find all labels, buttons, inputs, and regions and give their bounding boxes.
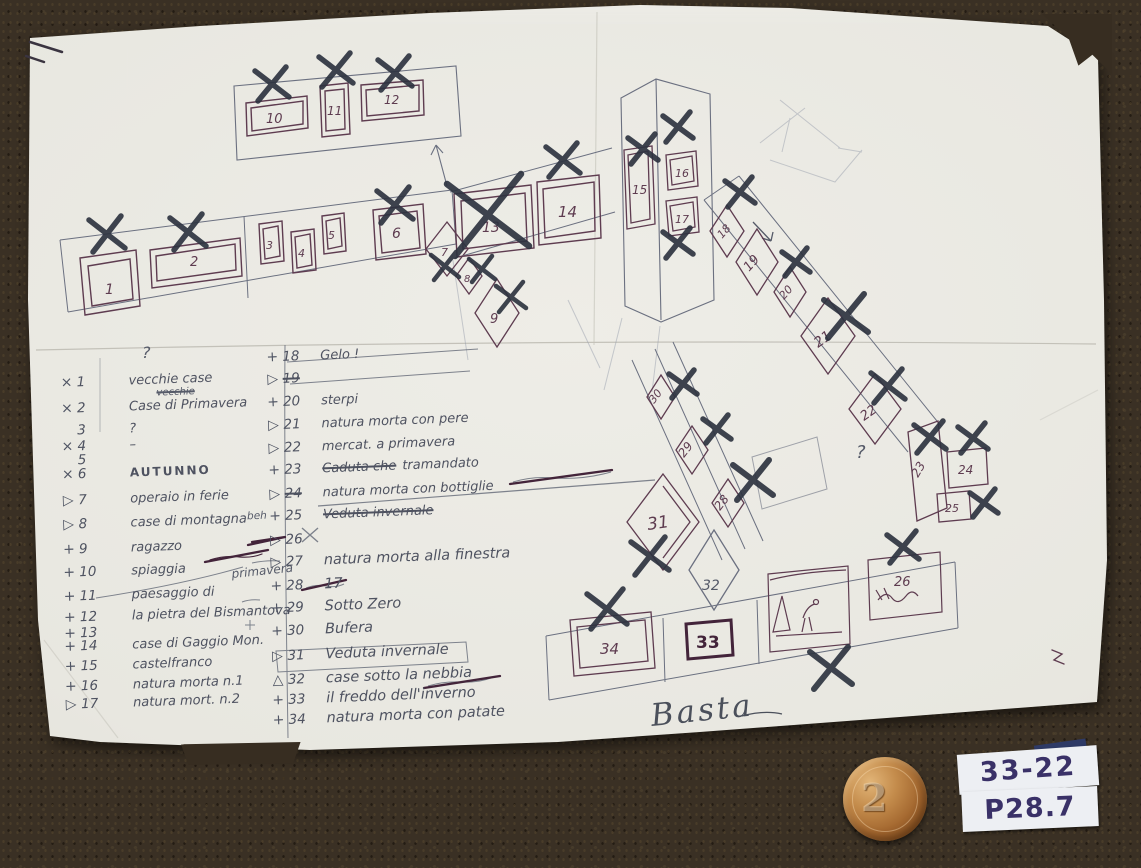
item-number: 29 (286, 600, 317, 615)
item-mark (58, 464, 78, 465)
item-number: 10 (79, 564, 105, 579)
item-number: 24 (284, 486, 315, 501)
frame-20: 20 (774, 267, 806, 317)
frames-bottom: 31 32 33 34 26 (570, 474, 942, 676)
frame-label-28: 28 (711, 492, 732, 513)
x-marks (89, 53, 998, 689)
frame-label-26: 26 (894, 575, 911, 590)
torn-notch (181, 742, 303, 765)
item-mark: ▷ (262, 372, 283, 387)
frame-label-7: 7 (441, 246, 448, 259)
frame-label-1: 1 (105, 282, 114, 298)
item-title: operaio in ferie (130, 489, 229, 506)
item-number: 20 (283, 394, 314, 409)
item-number: 30 (287, 623, 318, 638)
item-number: 14 (80, 638, 106, 653)
item-mark: ▷ (263, 418, 284, 433)
item-mark: + (60, 639, 81, 654)
frame-label-3: 3 (266, 239, 273, 252)
frame-33: 33 (686, 620, 733, 659)
item-title: castelfranco (132, 656, 212, 672)
item-number: 9 (79, 541, 105, 556)
list-item: 3? (57, 421, 136, 438)
sketch-drawing: 10 11 12 1 2 3 4 5 6 (0, 0, 1141, 868)
item-mark: + (268, 713, 289, 728)
wall-right-diagonal (704, 176, 941, 452)
frame-label-34: 34 (600, 640, 619, 658)
item-title: Bufera (325, 621, 374, 638)
frame-31: 31 (627, 474, 699, 570)
item-number: 26 (285, 532, 316, 547)
frame-doodle (768, 566, 850, 652)
list-item: +2817 (266, 577, 343, 595)
item-mark: ▷ (267, 649, 288, 664)
item-mark: ▷ (58, 517, 79, 532)
item-mark: × (57, 439, 78, 454)
item-mark: + (267, 624, 288, 639)
frame-34: 34 (570, 612, 655, 676)
item-mark: + (262, 350, 283, 365)
photo-of-sketch: 10 11 12 1 2 3 4 5 6 (0, 0, 1141, 868)
item-number: 11 (79, 588, 105, 603)
frame-label-5: 5 (328, 229, 335, 242)
item-number: 3 (77, 422, 103, 437)
item-mark: ▷ (266, 555, 287, 570)
frame-label-33: 33 (696, 633, 720, 653)
list-item: ▷26 (265, 531, 324, 548)
frame-15: 15 (624, 146, 655, 229)
frame-17: 17 (666, 197, 699, 236)
item-title: vecchie case (128, 372, 212, 389)
frame-label-12: 12 (384, 93, 399, 107)
frame-label-4: 4 (298, 247, 305, 260)
faint-square (752, 437, 827, 509)
item-mark: + (266, 579, 287, 594)
frame-1: 1 (80, 250, 140, 315)
item-number: 28 (286, 578, 317, 593)
item-mark: + (60, 610, 81, 625)
item-mark: ▷ (61, 697, 82, 712)
item-number: 22 (284, 440, 315, 455)
frame-label-31: 31 (646, 512, 670, 535)
basta-text: Basta (648, 687, 755, 734)
frame-25: 25 (937, 491, 971, 522)
item-number: 21 (283, 417, 314, 432)
annotations: ? ? primavera Basta (142, 343, 866, 734)
frames-left-wall: 1 2 3 4 5 6 (80, 204, 426, 315)
item-note-left: beh (247, 511, 267, 523)
sticker-label-bottom: P28.7 (961, 786, 1099, 832)
frame-label-30: 30 (646, 387, 665, 406)
item-title: paesaggio di (131, 586, 214, 603)
list-item: ▷19 (262, 370, 321, 387)
question-mark-top: ? (142, 343, 151, 362)
item-title: tramandato (402, 456, 479, 473)
item-number: 7 (78, 492, 104, 507)
item-crossed-prefix: Caduta che (322, 460, 397, 476)
item-number: 2 (77, 400, 103, 415)
frame-16: 16 (666, 151, 698, 190)
item-title: AUTUNNO (130, 464, 211, 479)
frame-label-24: 24 (958, 463, 973, 477)
frame-26: 26 (868, 552, 942, 620)
item-number: 23 (284, 462, 315, 477)
item-mark: + (266, 601, 287, 616)
frames-diagonal-789: 7 8 9 (426, 222, 519, 347)
item-mark: + (60, 659, 81, 674)
frame-5: 5 (322, 213, 346, 254)
frame-label-14: 14 (558, 203, 577, 221)
item-mark (57, 434, 77, 435)
item-number: 17 (81, 696, 107, 711)
item-title: Sotto Zero (324, 596, 401, 614)
item-number: 32 (288, 672, 319, 687)
arrow-up-icon (431, 145, 447, 186)
frame-label-10: 10 (266, 112, 283, 127)
item-mark: + (59, 565, 80, 580)
item-title: ? (129, 422, 136, 436)
item-mark: + (263, 395, 284, 410)
frame-2: 2 (150, 238, 242, 288)
item-title: sterpi (321, 393, 359, 408)
item-mark: + (59, 542, 80, 557)
item-mark: + (265, 509, 286, 524)
item-number: 34 (288, 712, 319, 727)
frames-right-diagonal: 18 19 20 21 22 23 24 25 (710, 205, 988, 522)
frame-label-9: 9 (490, 312, 498, 327)
frame-6: 6 (373, 204, 426, 260)
frame-label-20: 20 (777, 283, 796, 302)
item-mark: + (61, 679, 82, 694)
item-number: 18 (282, 349, 313, 364)
frame-label-16: 16 (675, 167, 689, 180)
frames-middle-diagonal: 30 29 28 (646, 375, 744, 527)
two-euro-coin: 2 (843, 757, 927, 841)
doodle-scribble (876, 588, 918, 602)
item-mark: △ (268, 673, 289, 688)
frame-label-25: 25 (945, 502, 959, 515)
frame-4: 4 (291, 229, 316, 273)
item-number: 19 (282, 371, 313, 386)
frame-3: 3 (259, 221, 284, 264)
frame-label-17: 17 (675, 213, 689, 226)
coin-value: 2 (861, 775, 887, 820)
item-number: 31 (287, 648, 318, 663)
doodle-figures (773, 596, 842, 636)
item-number: 27 (286, 554, 317, 569)
item-mark: ▷ (264, 441, 285, 456)
frame-label-8: 8 (464, 274, 470, 285)
item-title: spiaggia (131, 563, 186, 579)
frame-24: 24 (947, 448, 988, 488)
item-number: 12 (80, 609, 106, 624)
item-number: 8 (78, 516, 104, 531)
frame-label-15: 15 (632, 183, 647, 197)
item-number: 6 (78, 466, 104, 481)
frame-label-2: 2 (190, 255, 198, 270)
item-mark: × (56, 375, 77, 390)
item-title: 17 (324, 577, 343, 593)
item-number: 16 (81, 678, 107, 693)
frame-11: 11 (320, 83, 350, 137)
item-mark: + (268, 693, 289, 708)
frame-10: 10 (246, 96, 308, 136)
item-number: 25 (285, 508, 316, 523)
frame-label-29: 29 (675, 439, 695, 460)
item-mark: + (59, 589, 80, 604)
item-title: – (129, 438, 136, 452)
item-mark: × (57, 401, 78, 416)
item-title: ragazzo (131, 540, 183, 555)
item-mark: ▷ (58, 493, 79, 508)
item-number: 1 (76, 374, 102, 389)
item-number: 15 (80, 658, 106, 673)
item-note-above: vecchie (156, 387, 195, 399)
frame-label-18: 18 (715, 222, 734, 241)
item-mark: ▷ (265, 533, 286, 548)
frame-label-6: 6 (392, 226, 401, 242)
question-mark-23: ? (856, 442, 866, 463)
item-mark: + (264, 463, 285, 478)
item-title: Gelo ! (320, 348, 359, 363)
frame-label-11: 11 (327, 104, 342, 118)
frame-18: 18 (710, 205, 744, 257)
frames-top: 10 11 12 (246, 80, 424, 137)
item-mark: ▷ (264, 487, 285, 502)
frame-label-32: 32 (702, 578, 720, 594)
frame-14: 14 (537, 175, 601, 245)
item-mark: × (58, 467, 79, 482)
item-number: 33 (288, 692, 319, 707)
frame-label-19: 19 (741, 252, 763, 274)
frame-label-22: 22 (858, 402, 880, 424)
